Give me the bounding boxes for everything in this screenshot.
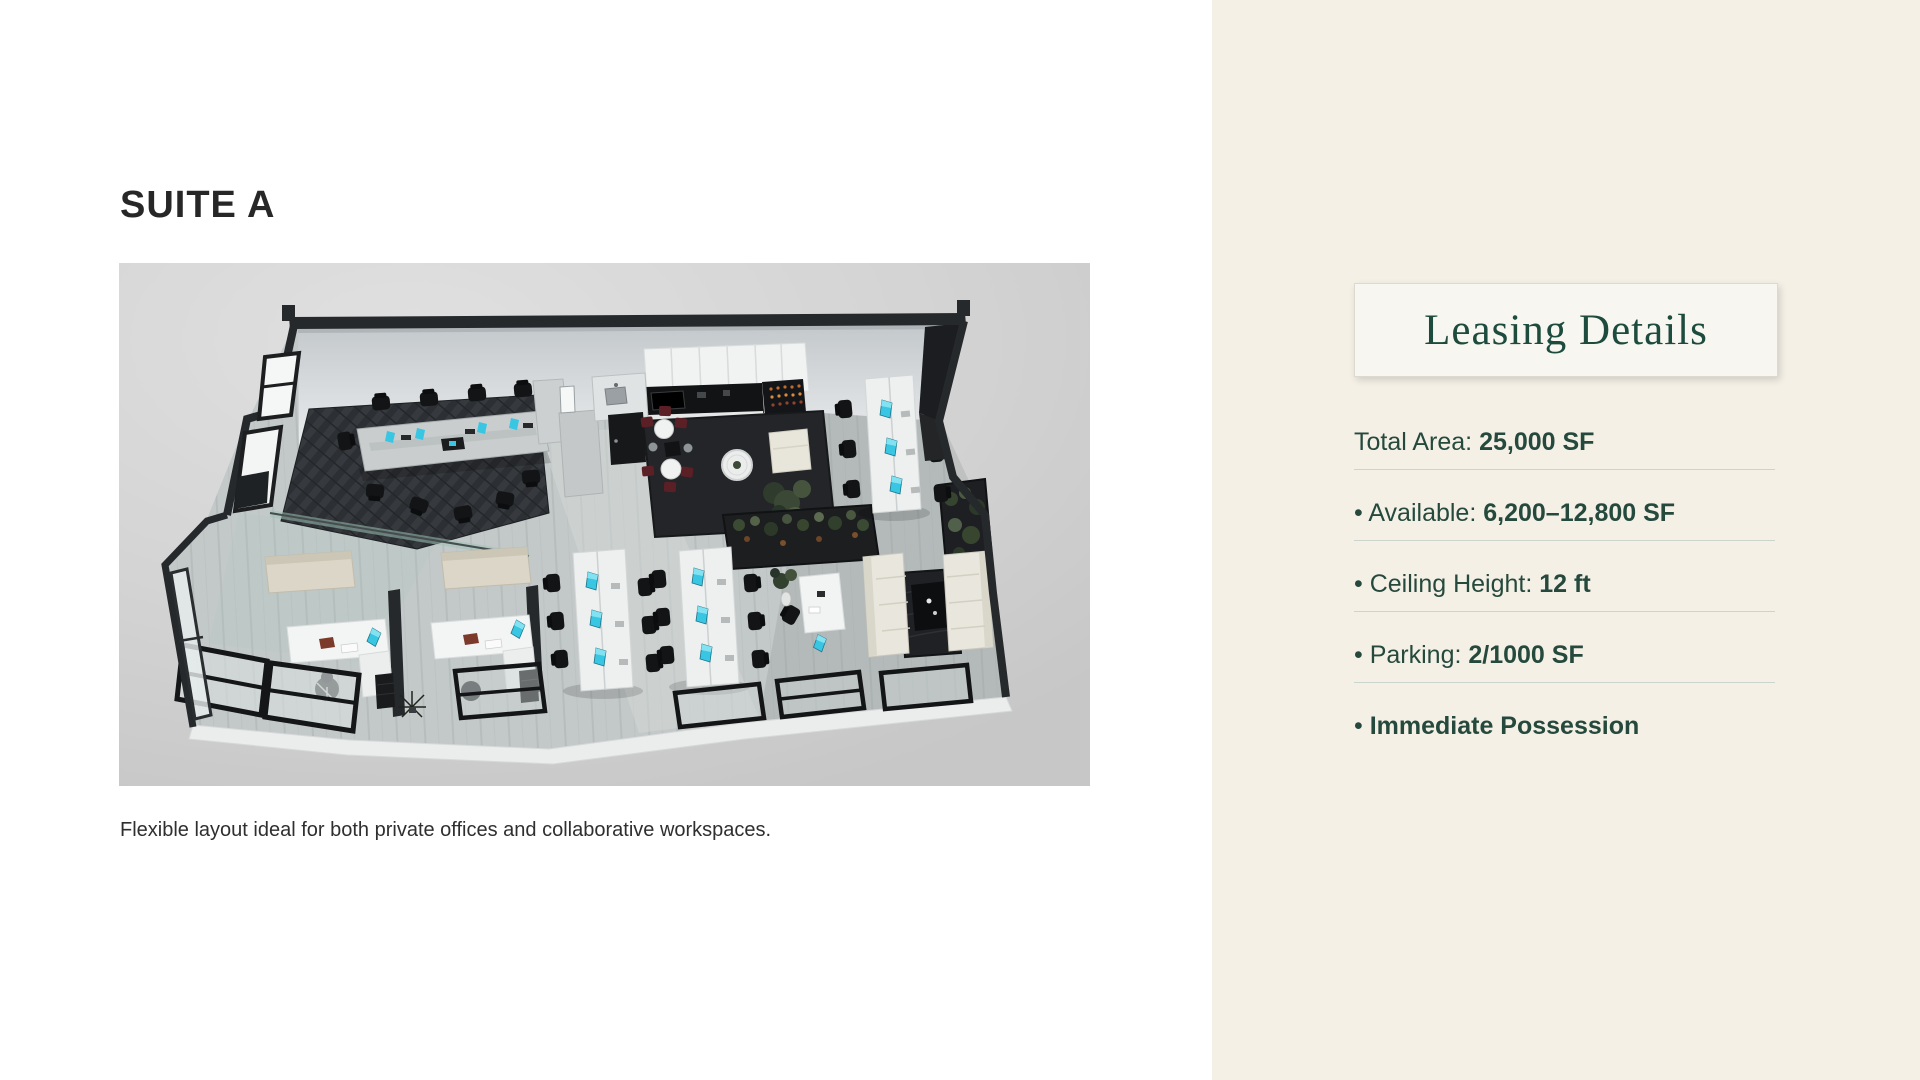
leasing-sidebar: Leasing Details Total Area: 25,000 SF • …	[1212, 0, 1920, 1080]
leasing-detail-item: • Parking: 2/1000 SF	[1354, 612, 1775, 683]
dispenser	[560, 386, 575, 413]
suite-title: SUITE A	[120, 186, 276, 224]
bottle-rack	[762, 379, 806, 415]
floor-plan-caption: Flexible layout ideal for both private o…	[120, 816, 771, 844]
planter-long	[723, 505, 879, 569]
leasing-detail-item: • Ceiling Height: 12 ft	[1354, 541, 1775, 612]
detail-label: Total Area:	[1354, 428, 1479, 456]
leasing-details-list: Total Area: 25,000 SF • Available: 6,200…	[1354, 429, 1775, 753]
detail-value: 12 ft	[1539, 570, 1590, 598]
drawer-unit	[375, 673, 395, 709]
detail-bullet: •	[1354, 499, 1368, 527]
content-area: SUITE A	[0, 0, 1212, 1080]
detail-bullet: •	[1354, 570, 1370, 598]
detail-value: Immediate Possession	[1370, 712, 1640, 740]
detail-value: 25,000 SF	[1479, 428, 1594, 456]
floor-plan-image	[119, 263, 1090, 786]
floor-plan-svg	[119, 263, 1090, 786]
leasing-details-title: Leasing Details	[1424, 306, 1708, 355]
page: SUITE A	[0, 0, 1920, 1080]
leasing-detail-item: • Immediate Possession	[1354, 683, 1775, 753]
lounge-chair	[769, 429, 811, 473]
detail-label: Parking:	[1370, 641, 1469, 669]
leasing-detail-item: Total Area: 25,000 SF	[1354, 429, 1775, 470]
service-counter	[559, 410, 603, 497]
leasing-detail-item: • Available: 6,200–12,800 SF	[1354, 470, 1775, 541]
cafe-table	[661, 459, 681, 479]
detail-bullet: •	[1354, 641, 1370, 669]
detail-value: 6,200–12,800 SF	[1483, 499, 1675, 527]
leasing-details-card: Leasing Details	[1354, 283, 1778, 377]
detail-value: 2/1000 SF	[1468, 641, 1583, 669]
detail-bullet: •	[1354, 712, 1370, 740]
detail-label: Available:	[1368, 499, 1483, 527]
door	[608, 412, 646, 465]
cafe-table	[655, 420, 674, 439]
detail-label: Ceiling Height:	[1370, 570, 1540, 598]
